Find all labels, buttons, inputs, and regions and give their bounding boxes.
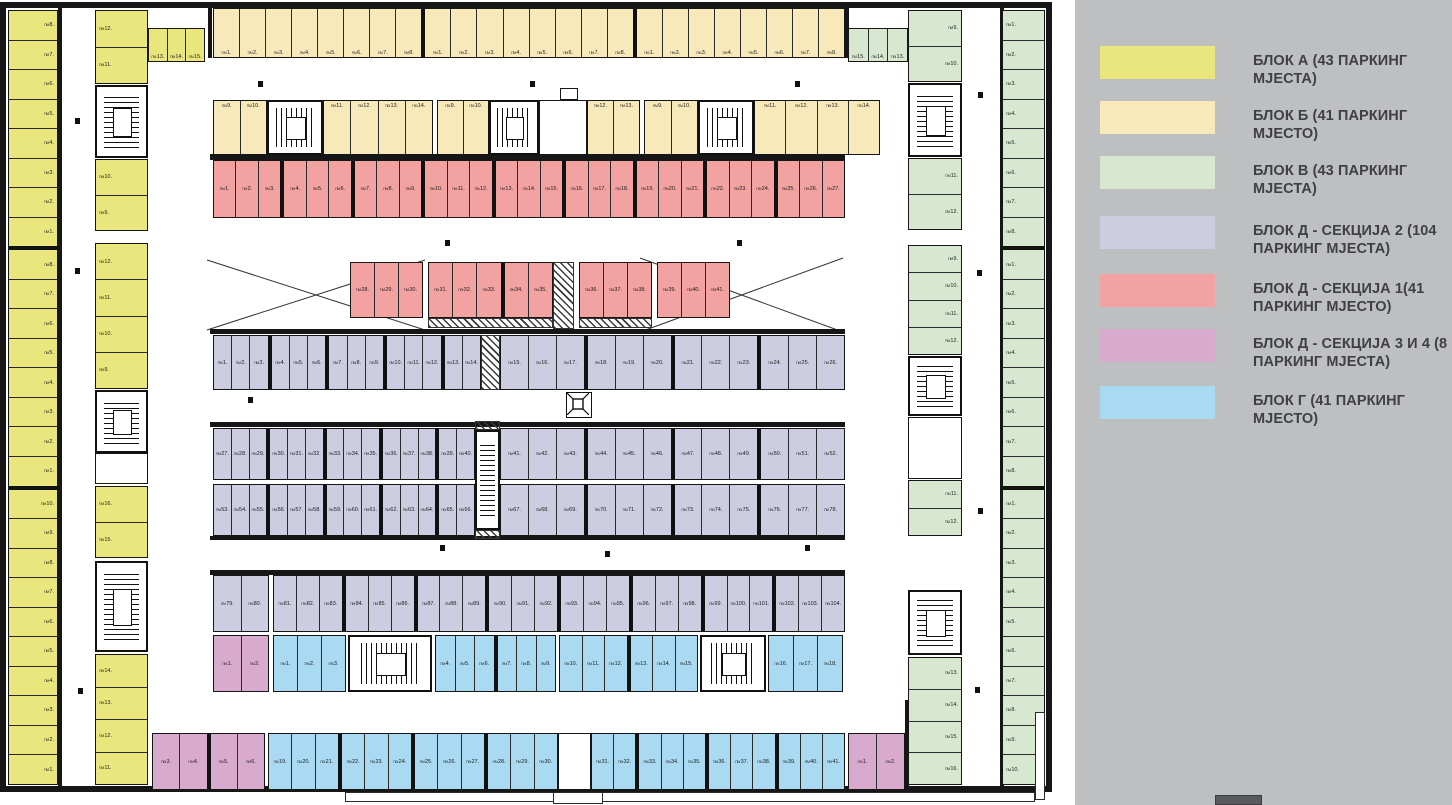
parking-stall: ПМ15. [909,721,961,753]
hatch-area [553,262,574,329]
parking-stall-label: ПМ8. [377,186,398,192]
stall-prefix: ПМ [459,51,464,55]
parking-stall-label: ПМ48. [702,451,729,457]
block-b-row2-b1: ПМ9.ПМ10. [437,100,489,155]
parking-stall: ПМ34. [343,429,361,479]
stall-prefix: ПМ [948,257,953,261]
stall-prefix: ПМ [681,508,686,512]
parking-stall-label: ПМ65. [439,507,456,513]
parking-stall-label: ПМ8. [1006,707,1016,713]
parking-stall: ПМ93. [561,576,583,631]
parking-stall: ПМ10. [463,101,489,154]
stall-prefix: ПМ [1006,502,1011,506]
parking-stall-label: ПМ15. [676,661,698,667]
legend-swatch [1100,46,1215,79]
parking-stall-label: ПМ41. [823,759,844,765]
parking-stall-label: ПМ8. [44,560,54,566]
parking-stall: ПМ5. [289,336,307,389]
stall-prefix: ПМ [1006,82,1011,86]
stall-prefix: ПМ [465,361,470,365]
stall-prefix: ПМ [44,53,49,57]
parking-stall: ПМ69. [556,485,584,535]
dock-outline [1035,712,1045,800]
parking-stall-label: ПМ11. [448,186,469,192]
parking-stall-label: ПМ31. [592,759,613,765]
parking-stall: ПМ11. [447,161,469,217]
parking-stall: ПМ11. [909,300,961,327]
parking-stall: ПМ14. [868,29,888,61]
parking-stall-label: ПМ36. [580,287,603,293]
parking-stall-label: ПМ18. [818,661,842,667]
hatch-area [579,318,652,328]
parking-stall-label: ПМ2. [1006,52,1016,58]
stall-prefix: ПМ [534,288,539,292]
parking-stall: ПМ14. [517,161,539,217]
parking-stall-label: ПМ9. [537,661,556,667]
block-a-inner-3: ПМ12.ПМ11.ПМ10.ПМ9. [95,243,148,389]
stall-prefix: ПМ [1006,469,1011,473]
stall-prefix: ПМ [329,508,334,512]
stall-prefix: ПМ [459,508,464,512]
parking-stall-label: ПМ10. [99,174,112,180]
stall-prefix: ПМ [737,452,742,456]
stall-prefix: ПМ [364,508,369,512]
parking-stall-label: ПМ31. [429,287,452,293]
stall-prefix: ПМ [508,508,513,512]
parking-stall-label: ПМ75. [730,507,757,513]
stall-prefix: ПМ [347,760,352,764]
block-v-inner-5: ПМ13.ПМ14.ПМ15.ПМ16. [908,657,962,785]
stall-prefix: ПМ [764,104,769,108]
block-d2-rowD-2: ПМ81.ПМ82.ПМ83.ПМ84.ПМ85.ПМ86.ПМ87.ПМ88.… [273,575,845,632]
parking-stall: ПМ94. [583,576,606,631]
parking-stall-label: ПМ8. [44,262,54,268]
parking-stall-label: ПМ12. [945,519,958,525]
stairwell [267,100,323,155]
parking-stall: ПМ44. [588,429,615,479]
parking-stall: ПМ14. [167,29,186,61]
parking-stall-label: ПМ1. [44,229,54,235]
stall-prefix: ПМ [681,361,686,365]
parking-stall-label: ПМ7. [1006,439,1016,445]
stall-prefix: ПМ [748,51,753,55]
stall-prefix: ПМ [945,671,950,675]
parking-stall: ПМ9. [536,636,556,691]
parking-stall-label: ПМ1. [44,767,54,773]
parking-stall-label: ПМ12. [99,259,112,265]
parking-stall-label: ПМ103. [799,601,821,607]
stall-prefix: ПМ [350,602,355,606]
stall-prefix: ПМ [711,187,716,191]
block-g-row1-4: ПМ16.ПМ17.ПМ18. [768,635,843,692]
parking-stall: ПМ5. [740,9,766,57]
stall-prefix: ПМ [653,104,658,108]
stall-prefix: ПМ [595,361,600,365]
parking-stall: ПМ3. [9,397,57,427]
parking-stall-label: ПМ9. [645,103,671,109]
stall-prefix: ПМ [251,508,256,512]
parking-stall: ПМ23. [364,734,387,789]
parking-stall-label: ПМ4. [436,661,455,667]
stall-prefix: ПМ [99,211,104,215]
parking-stall-label: ПМ6. [1006,648,1016,654]
parking-stall: ПМ19. [637,161,658,217]
stall-prefix: ПМ [308,452,313,456]
parking-stall: ПМ28. [488,734,510,789]
elevator-cab [113,410,133,436]
parking-stall: ПМ2. [231,336,249,389]
parking-stall-label: ПМ37. [401,451,418,457]
parking-stall-label: ПМ24. [761,360,788,366]
parking-stall-label: ПМ3. [44,409,54,415]
stall-prefix: ПМ [637,602,642,606]
parking-stall-label: ПМ13. [888,54,907,60]
stall-prefix: ПМ [564,452,569,456]
parking-stall: ПМ1. [9,217,57,247]
parking-stall: ПМ10. [387,336,404,389]
stall-prefix: ПМ [641,187,646,191]
parking-stall-label: ПМ8. [608,50,633,56]
stall-prefix: ПМ [1006,141,1011,145]
parking-stall: ПМ13. [909,658,961,689]
parking-stall: ПМ37. [400,429,418,479]
stairwell [908,83,962,157]
parking-stall: ПМ13. [149,29,167,61]
stall-prefix: ПМ [737,508,742,512]
parking-stall: ПМ15. [675,636,698,691]
parking-stall: ПМ17. [588,161,610,217]
parking-stall: ПМ30. [270,429,287,479]
parking-stall: ПМ11. [96,279,147,315]
parking-stall-label: ПМ6. [44,321,54,327]
parking-stall-label: ПМ3. [1006,81,1016,87]
parking-stall-label: ПМ18. [611,186,632,192]
parking-stall: ПМ1. [1003,490,1044,519]
parking-stall: ПМ37. [730,734,752,789]
stall-prefix: ПМ [564,361,569,365]
stall-prefix: ПМ [189,55,194,59]
wall [58,8,62,786]
parking-stall-label: ПМ92. [535,601,557,607]
stall-prefix: ПМ [623,508,628,512]
stall-prefix: ПМ [44,112,49,116]
parking-stall-label: ПМ44. [588,451,615,457]
stall-prefix: ПМ [687,288,692,292]
parking-stall-label: ПМ2. [44,199,54,205]
parking-stall: ПМ2. [239,9,265,57]
stall-prefix: ПМ [248,602,253,606]
parking-stall-label: ПМ1. [849,759,876,765]
parking-stall: ПМ17. [793,636,818,691]
parking-stall: ПМ10. [240,101,267,154]
parking-stall: ПМ47. [675,429,702,479]
parking-stall-label: ПМ11. [583,661,605,667]
stall-prefix: ПМ [609,288,614,292]
parking-stall-label: ПМ24. [389,759,411,765]
stall-prefix: ПМ [757,760,762,764]
stall-prefix: ПМ [521,662,526,666]
parking-stall-label: ПМ13. [496,186,517,192]
parking-stall-label: ПМ4. [272,360,289,366]
stall-prefix: ПМ [644,51,649,55]
stall-prefix: ПМ [1006,322,1011,326]
parking-stall-label: ПМ12. [423,360,440,366]
stall-prefix: ПМ [441,508,446,512]
parking-stall-label: ПМ9. [400,186,421,192]
parking-stall-label: ПМ40. [682,287,705,293]
parking-stall: ПМ7. [369,9,395,57]
parking-stall: ПМ7. [792,9,818,57]
stall-prefix: ПМ [1006,53,1011,57]
parking-stall: ПМ8. [395,9,421,57]
parking-stall-label: ПМ2. [242,661,269,667]
parking-stall-label: ПМ14. [945,702,958,708]
stall-prefix: ПМ [536,452,541,456]
stall-prefix: ПМ [312,361,317,365]
parking-stall: ПМ6. [9,308,57,338]
parking-stall: ПМ21. [681,161,703,217]
parking-stall: ПМ6. [474,636,494,691]
parking-stall: ПМ8. [1003,456,1044,486]
block-a-inner-5: ПМ14.ПМ13.ПМ12.ПМ11. [95,654,148,785]
stall-prefix: ПМ [483,288,488,292]
parking-stall-label: ПМ88. [440,601,462,607]
parking-stall: ПМ6. [237,734,264,789]
parking-stall: ПМ42. [528,429,556,479]
parking-stall: ПМ103. [798,576,821,631]
stall-prefix: ПМ [802,602,807,606]
parking-stall-label: ПМ5. [211,759,237,765]
parking-stall: ПМ12. [909,194,961,230]
parking-stall-label: ПМ73. [675,507,702,513]
parking-stall-label: ПМ39. [658,287,681,293]
parking-stall-label: ПМ16. [99,501,112,507]
parking-stall: ПМ34. [661,734,683,789]
stall-prefix: ПМ [99,332,104,336]
parking-stall-label: ПМ17. [589,186,610,192]
structural-column [78,688,83,694]
parking-stall: ПМ7. [1003,666,1044,696]
block-d2-rowA-2: ПМ15.ПМ16.ПМ17.ПМ18.ПМ19.ПМ20.ПМ21.ПМ22.… [500,335,845,390]
stall-prefix: ПМ [281,662,286,666]
parking-stall-label: ПМ7. [44,52,54,58]
parking-stall-label: ПМ23. [365,759,387,765]
stall-prefix: ПМ [824,361,829,365]
parking-stall: ПМ61. [361,485,379,535]
parking-stall: ПМ3. [153,734,179,789]
parking-stall: ПМ10. [560,636,582,691]
parking-stall-label: ПМ41. [501,451,528,457]
block-g-row2-a: ПМ19.ПМ20.ПМ21.ПМ22.ПМ23.ПМ24.ПМ25.ПМ26.… [268,733,558,790]
stall-prefix: ПМ [618,760,623,764]
parking-stall: ПМ72. [643,485,671,535]
parking-stall: ПМ1. [214,636,241,691]
stall-prefix: ПМ [466,760,471,764]
parking-stall: ПМ4. [9,367,57,397]
parking-stall-label: ПМ12. [99,733,112,739]
parking-stall-label: ПМ8. [1006,468,1016,474]
stall-prefix: ПМ [469,104,474,108]
elevator-cab [506,117,525,139]
block-g-row1-2: ПМ4.ПМ5.ПМ6.ПМ7.ПМ8.ПМ9. [435,635,556,692]
parking-stall: ПМ53. [214,485,231,535]
parking-stall-label: ПМ35. [684,759,705,765]
stall-prefix: ПМ [275,361,280,365]
parking-stall-label: ПМ14. [463,360,480,366]
parking-stall-label: ПМ3. [322,661,345,667]
parking-stall-label: ПМ59. [327,507,344,513]
parking-stall: ПМ19. [269,734,291,789]
stall-prefix: ПМ [563,51,568,55]
stall-prefix: ПМ [730,602,735,606]
stall-prefix: ПМ [475,187,480,191]
parking-stall: ПМ28. [351,263,374,317]
parking-stall-label: ПМ13. [631,661,653,667]
stall-prefix: ПМ [170,55,175,59]
parking-stall-label: ПМ11. [99,295,112,301]
parking-stall-label: ПМ19. [637,186,658,192]
parking-stall: ПМ6. [1003,397,1044,427]
parking-stall: ПМ80. [241,576,269,631]
parking-stall: ПМ7. [9,40,57,70]
stall-prefix: ПМ [945,174,950,178]
parking-stall-label: ПМ90. [489,601,511,607]
stall-prefix: ПМ [404,288,409,292]
parking-stall: ПМ41. [822,734,844,789]
parking-stall-label: ПМ7. [1006,199,1016,205]
stall-prefix: ПМ [857,104,862,108]
stall-prefix: ПМ [278,602,283,606]
parking-stall: ПМ11. [404,336,422,389]
parking-stall-label: ПМ10. [41,501,54,507]
block-b-row2-c2: ПМ11.ПМ12.ПМ13.ПМ14. [754,100,880,155]
stall-prefix: ПМ [688,760,693,764]
stall-prefix: ПМ [589,51,594,55]
parking-stall-label: ПМ57. [288,507,305,513]
parking-stall-label: ПМ32. [614,759,635,765]
parking-stall-label: ПМ3. [689,50,714,56]
parking-stall-label: ПМ2. [240,50,265,56]
parking-stall: ПМ60. [343,485,361,535]
stall-prefix: ПМ [623,452,628,456]
parking-stall: ПМ88. [439,576,462,631]
parking-stall-label: ПМ11. [99,62,112,68]
parking-stall: ПМ24. [751,161,773,217]
legend-entry: БЛОК Д - СЕКЦИЈА 2 (104 ПАРКИНГ МЈЕСТА) [1100,216,1452,258]
parking-stall: ПМ2. [9,725,57,755]
stall-prefix: ПМ [536,508,541,512]
legend-entry: БЛОК Д - СЕКЦИЈА 3 И 4 (8 ПАРКИНГ МЈЕСТА… [1100,329,1452,371]
parking-stall-label: ПМ10. [945,61,958,67]
parking-stall: ПМ31. [592,734,613,789]
parking-stall: ПМ14. [405,101,432,154]
stall-prefix: ПМ [430,187,435,191]
parking-stall-label: ПМ7. [44,291,54,297]
stall-prefix: ПМ [1006,590,1011,594]
parking-stall: ПМ17. [556,336,584,389]
stall-prefix: ПМ [615,51,620,55]
parking-stall-label: ПМ29. [250,451,267,457]
stall-prefix: ПМ [945,210,950,214]
parking-stall: ПМ3. [321,636,345,691]
stall-prefix: ПМ [541,662,546,666]
stall-prefix: ПМ [426,361,431,365]
stall-prefix: ПМ [774,662,779,666]
stall-prefix: ПМ [945,492,950,496]
parking-stall: ПМ11. [96,752,147,785]
parking-stall-label: ПМ19. [269,759,291,765]
parking-stall: ПМ7. [9,577,57,607]
parking-stall: ПМ35. [528,263,552,317]
parking-stall-label: ПМ12. [99,26,112,32]
parking-stall: ПМ16. [769,636,793,691]
parking-stall-label: ПМ51. [789,451,816,457]
structural-column [248,397,253,403]
stall-prefix: ПМ [500,187,505,191]
parking-stall-label: ПМ33. [327,451,344,457]
legend-label: БЛОК Д - СЕКЦИЈА 1(41 ПАРКИНГ МЈЕСТО) [1253,274,1452,316]
parking-stall-label: ПМ10. [241,103,267,109]
block-v-inner-2: ПМ11.ПМ12. [908,158,962,230]
stall-prefix: ПМ [1006,112,1011,116]
block-d2-rowC-1: ПМ53.ПМ54.ПМ55.ПМ56.ПМ57.ПМ58.ПМ59.ПМ60.… [213,484,475,536]
stall-prefix: ПМ [248,51,253,55]
parking-stall-label: ПМ78. [817,507,844,513]
parking-stall-label: ПМ21. [675,360,702,366]
parking-stall: ПМ1. [1003,250,1044,279]
stall-prefix: ПМ [564,662,569,666]
stall-prefix: ПМ [44,620,49,624]
parking-stall-label: ПМ1. [274,661,297,667]
stall-prefix: ПМ [393,760,398,764]
stall-prefix: ПМ [571,187,576,191]
stall-prefix: ПМ [234,508,239,512]
parking-stall: ПМ2. [1003,279,1044,309]
parking-stall-label: ПМ7. [1006,678,1016,684]
stall-prefix: ПМ [222,104,227,108]
parking-stall-label: ПМ101. [750,601,772,607]
parking-stall-label: ПМ63. [401,507,418,513]
parking-stall-label: ПМ16. [566,186,587,192]
legend-label: БЛОК Д - СЕКЦИЈА 3 И 4 (8 ПАРКИНГ МЈЕСТА… [1253,329,1452,371]
stall-prefix: ПМ [246,760,251,764]
parking-stall-label: ПМ80. [242,601,269,607]
stall-prefix: ПМ [709,602,714,606]
parking-stall: ПМ29. [374,263,398,317]
stall-prefix: ПМ [945,312,950,316]
block-b-row1: ПМ1.ПМ2.ПМ3.ПМ4.ПМ5.ПМ6.ПМ7.ПМ8.ПМ1.ПМ2.… [213,8,845,58]
parking-stall-label: ПМ6. [238,759,264,765]
stall-prefix: ПМ [872,55,877,59]
panel-corner-tab[interactable] [1215,795,1262,805]
parking-stall: ПМ40. [456,429,474,479]
parking-stall-label: ПМ3. [1006,321,1016,327]
parking-stall: ПМ7. [1003,426,1044,456]
stall-prefix: ПМ [709,361,714,365]
stall-prefix: ПМ [494,602,499,606]
stall-prefix: ПМ [251,452,256,456]
parking-stall: ПМ2. [662,9,688,57]
parking-stall-label: ПМ3. [44,170,54,176]
parking-stall-label: ПМ100. [728,601,750,607]
parking-stall: ПМ10. [425,161,446,217]
parking-stall: ПМ7. [9,279,57,309]
stall-prefix: ПМ [795,104,800,108]
parking-stall-label: ПМ19. [616,360,643,366]
parking-stall: ПМ5. [1003,607,1044,637]
stall-prefix: ПМ [651,361,656,365]
parking-stall: ПМ77. [788,485,816,535]
